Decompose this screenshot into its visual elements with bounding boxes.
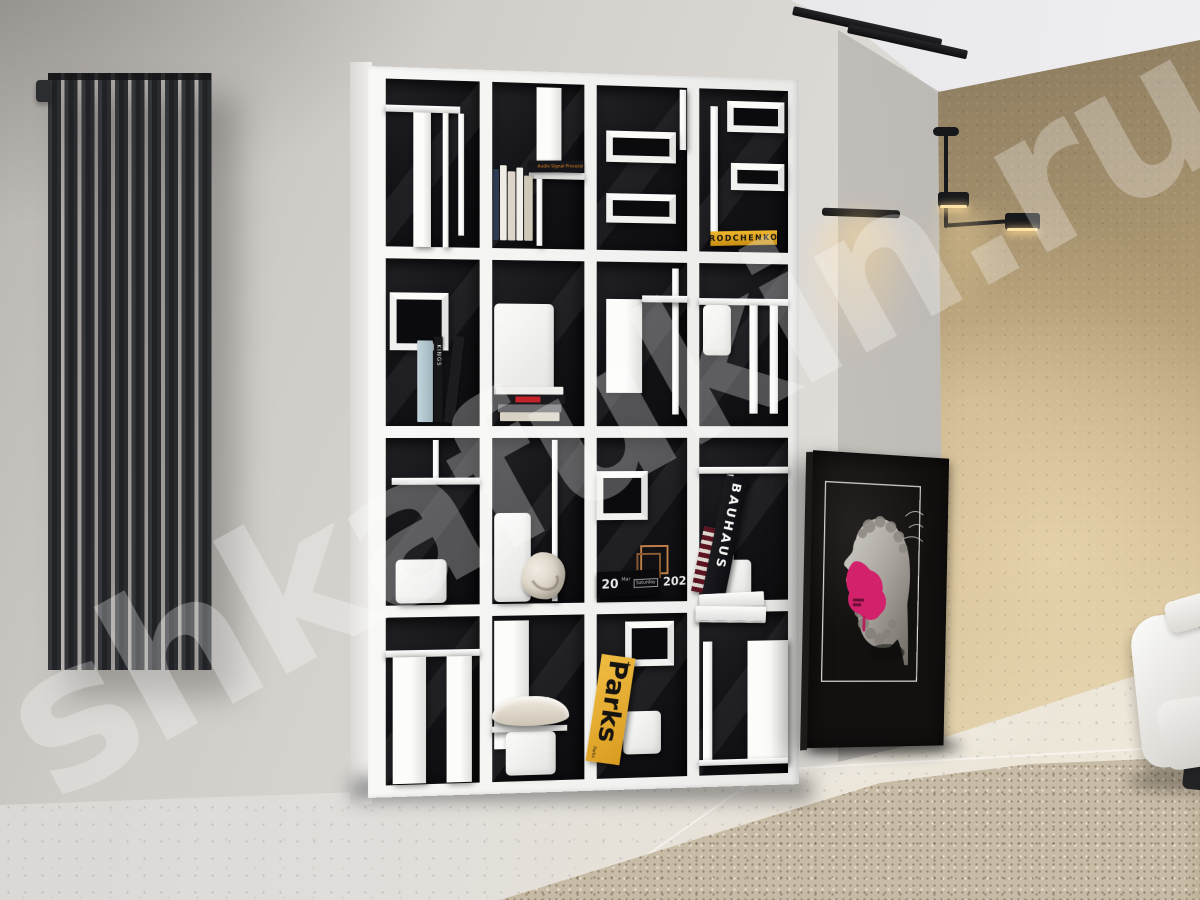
shelf-cube xyxy=(492,438,584,604)
book-group xyxy=(493,163,533,241)
audio-book: Audio Signal Processing and Coding xyxy=(528,160,584,172)
shelf-cube: Parks + Parks xyxy=(597,613,687,779)
shelf-cube xyxy=(597,85,687,251)
stacked-book xyxy=(496,387,563,395)
shelf-partition xyxy=(447,656,472,783)
interior-scene: Audio Signal Processing and Coding RODCH… xyxy=(0,0,1200,900)
parks-back-label: Parks xyxy=(590,746,596,758)
twisted-sculpture xyxy=(521,552,565,600)
book-spine xyxy=(500,165,507,240)
audio-book-title: Audio Signal Processing and Coding xyxy=(528,164,584,169)
stacked-book xyxy=(498,404,561,412)
shelf-partition xyxy=(710,106,717,242)
shelf-cube xyxy=(386,616,480,785)
shelf-open-box xyxy=(597,471,648,520)
shelf-cube xyxy=(597,261,687,426)
radiator xyxy=(48,73,215,670)
shelf-partition xyxy=(703,641,712,764)
shelf-open-box xyxy=(606,130,676,163)
rodchenko-book: RODCHENKO xyxy=(710,230,777,246)
bookshelf-frame: Audio Signal Processing and Coding RODCH… xyxy=(368,66,799,798)
shelf-cube xyxy=(492,260,584,426)
book-spine xyxy=(524,176,533,241)
shelf-partition xyxy=(672,268,679,414)
shelf-partition xyxy=(443,113,449,247)
shelf-cube: KINGS xyxy=(386,258,480,426)
shelf-partition xyxy=(393,657,426,784)
shelf-cube xyxy=(386,438,480,606)
kings-title: KINGS xyxy=(435,345,441,367)
shelf-cube: RODCHENKO xyxy=(699,88,788,253)
pendant-lamp-head xyxy=(938,192,969,207)
radiator-valve xyxy=(36,80,51,102)
shelf-board xyxy=(642,295,687,302)
calendar-month: Mar xyxy=(621,577,630,583)
shelf-board xyxy=(699,758,788,766)
shelf-board xyxy=(392,478,480,485)
shelf-cube: Audio Signal Processing and Coding xyxy=(492,82,584,250)
pendant-lamp-head xyxy=(1005,213,1040,230)
red-label xyxy=(515,396,540,402)
shelf-partition xyxy=(770,306,778,414)
shelf-cube: 20 Mar Saturday 2021 xyxy=(597,438,687,603)
shelf-partition xyxy=(680,90,687,150)
white-book-stack xyxy=(696,592,768,628)
pendant-glow xyxy=(918,210,1008,320)
book-stack xyxy=(492,387,567,427)
calendar-year: 2021 xyxy=(663,573,694,588)
shelf-partition xyxy=(606,299,642,393)
rodchenko-title: RODCHENKO xyxy=(709,233,778,244)
wall-lamp-glow xyxy=(796,214,924,364)
shelf-open-box xyxy=(727,101,784,134)
shelf-partition xyxy=(433,440,439,478)
bookshelf: Audio Signal Processing and Coding RODCH… xyxy=(368,66,799,798)
shelf-partition xyxy=(748,640,789,764)
shelf-cube xyxy=(492,614,584,782)
shelf-partition xyxy=(458,114,464,236)
shelf-cube xyxy=(699,611,788,776)
book-spine xyxy=(516,167,523,240)
parks-plus-mark: + xyxy=(624,660,633,671)
shelf-box xyxy=(396,559,447,603)
kings-book: KINGS xyxy=(434,337,443,423)
shelf-board xyxy=(699,467,788,474)
book-spine xyxy=(493,169,499,240)
shelf-open-box xyxy=(731,163,785,191)
shelf-partition xyxy=(413,112,431,247)
book-spine-blue xyxy=(417,340,433,422)
book-group: KINGS xyxy=(417,332,454,422)
shelf-box xyxy=(494,303,554,398)
shelf-open-box xyxy=(606,193,676,224)
shelf-box xyxy=(506,731,556,776)
statue-poster xyxy=(807,450,949,748)
stacked-book xyxy=(494,394,565,404)
calendar-day: 20 xyxy=(601,577,618,593)
white-book xyxy=(695,606,766,623)
book-spine xyxy=(444,335,465,423)
desk-calendar: 20 Mar Saturday 2021 xyxy=(597,569,659,598)
shelf-cube: BAUHAUS xyxy=(699,438,788,601)
calendar-weekday: Saturday xyxy=(633,578,658,588)
shelf-partition xyxy=(749,305,757,413)
shelf-box xyxy=(703,305,731,356)
shelf-cube xyxy=(386,79,480,248)
stacked-book xyxy=(500,412,560,421)
shelf-cube xyxy=(699,263,788,426)
book-spine xyxy=(508,171,516,240)
statue-artwork xyxy=(807,450,949,748)
shelf-partition xyxy=(537,179,543,246)
shelf-box xyxy=(623,711,661,755)
